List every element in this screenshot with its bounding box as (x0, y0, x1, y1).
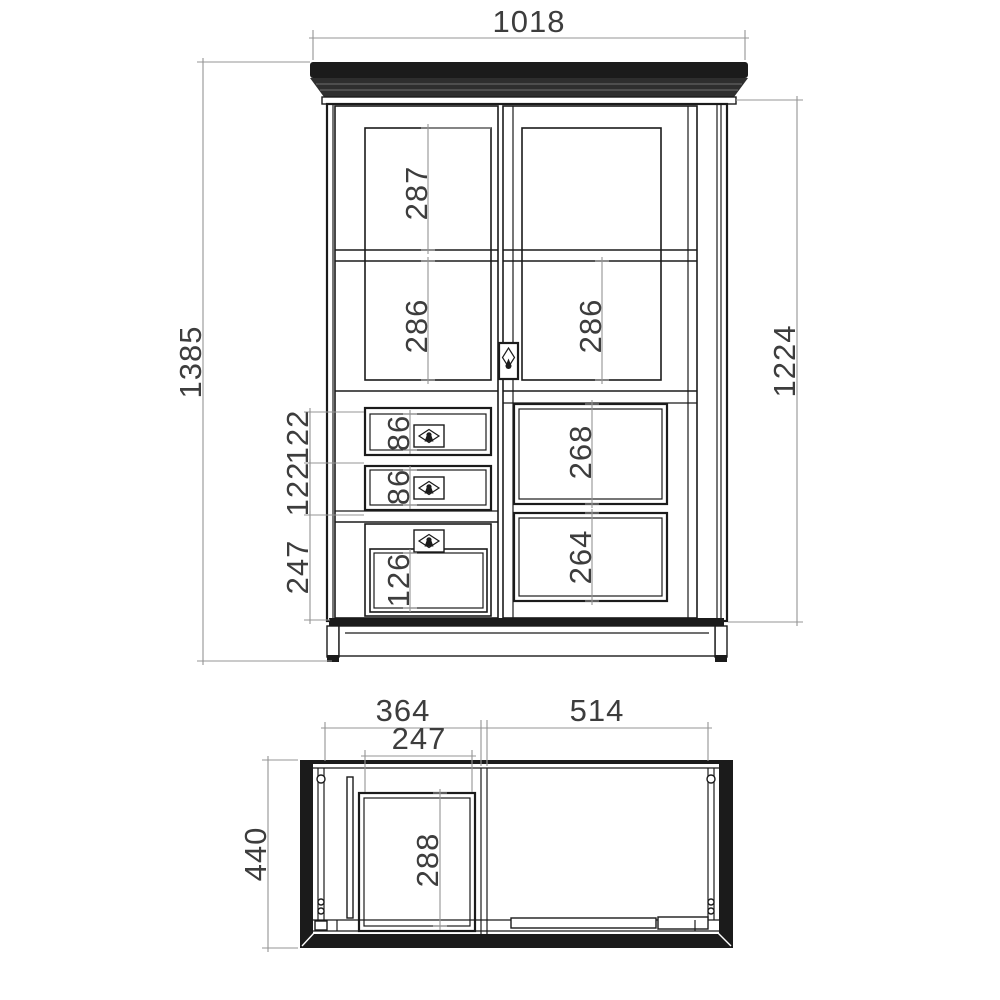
dim-lower-door-panel: 126 (381, 549, 417, 612)
plinth-panel (339, 626, 715, 656)
center-partition (481, 768, 487, 934)
dim-overall-width-label: 1018 (493, 4, 566, 39)
dim-right-panel-lower-label: 264 (563, 530, 598, 585)
dim-drawer-opening-1: 86 (381, 410, 417, 454)
dim-overall-width: 1018 (309, 4, 749, 60)
dim-left-glass-lower-label: 286 (399, 299, 434, 354)
base-plinth (327, 618, 727, 662)
front-elevation-view (310, 62, 748, 662)
crown-cove (310, 78, 748, 97)
crown-molding (310, 62, 748, 104)
front-wall (300, 934, 733, 948)
dim-carcass-height-label: 1224 (767, 325, 802, 398)
drawer-slide-rail (347, 777, 353, 918)
dim-carcass-height: 1224 (728, 96, 803, 626)
dim-right-panel-upper-label: 268 (563, 425, 598, 480)
hinge-icon (318, 899, 324, 905)
hinge-icon (708, 908, 714, 914)
right-leg (715, 626, 727, 657)
drawer-1-handle-icon (414, 425, 444, 447)
bottom-edge (329, 618, 724, 626)
left-door-section (317, 768, 325, 920)
dim-lower-door-front-label: 247 (280, 540, 315, 595)
left-side-wall (300, 760, 313, 948)
dim-plan-depth-label: 440 (238, 827, 273, 882)
dim-plan-right-section: 514 (483, 693, 712, 761)
dim-drawer-front-2-label: 122 (280, 462, 315, 517)
technical-drawing-page: 1018 1385 1224 287 286 (0, 0, 1000, 1000)
lower-door-handle-icon (414, 530, 444, 552)
dim-plan-drawer-width-label: 247 (392, 721, 447, 756)
dim-left-glass-upper-label: 287 (399, 166, 434, 221)
hinge-icon (317, 775, 325, 783)
hinge-icon (708, 899, 714, 905)
dim-plan-depth: 440 (238, 756, 298, 952)
right-door-section (707, 768, 715, 920)
lock-escutcheon-icon (499, 343, 518, 379)
dim-lower-door-front: 247 (280, 511, 330, 624)
dim-plan-drawer-width: 247 (361, 721, 476, 792)
dim-drawer-opening-1-label: 86 (381, 415, 416, 451)
right-foot (715, 655, 727, 662)
left-leg (327, 626, 339, 657)
dim-drawer-front-1-label: 122 (280, 410, 315, 465)
crown-top-board (310, 62, 748, 78)
cabinet-technical-drawing: 1018 1385 1224 287 286 (0, 0, 1000, 1000)
right-side-wall (719, 760, 733, 948)
dim-right-glass-label: 286 (573, 299, 608, 354)
dim-plan-right-section-label: 514 (570, 693, 625, 728)
dim-drawer-opening-2: 86 (381, 466, 417, 509)
hinge-icon (707, 775, 715, 783)
dim-overall-height-label: 1385 (173, 326, 208, 399)
dim-drawer-opening-2-label: 86 (381, 469, 416, 505)
drawer-2-handle-icon (414, 477, 444, 499)
dim-lower-door-panel-label: 126 (381, 553, 416, 608)
hinge-icon (318, 908, 324, 914)
dim-plan-drawer-depth-label: 288 (410, 833, 445, 888)
